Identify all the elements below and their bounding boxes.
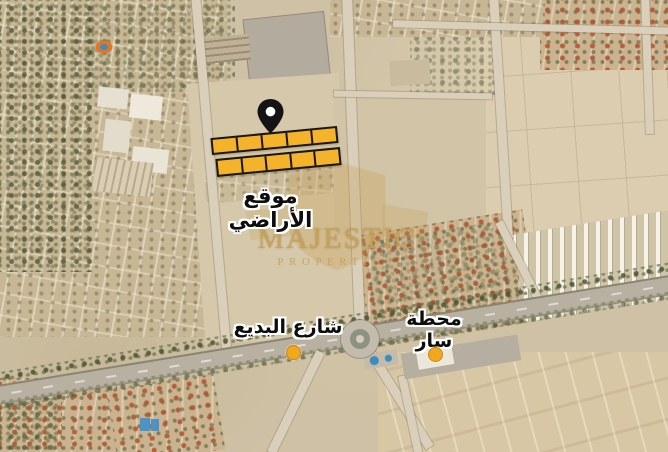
roundabout-center	[356, 335, 364, 343]
warehouse-building	[92, 157, 153, 197]
plot-cell	[213, 138, 239, 153]
road-roundabout-southwest	[267, 350, 324, 452]
building-block	[102, 119, 131, 154]
plot-cell	[238, 135, 264, 150]
building-strip	[201, 34, 251, 65]
budaiya-road-label: شارع البديع	[233, 317, 343, 339]
plot-cell	[287, 130, 313, 145]
location-pin-icon	[257, 99, 284, 134]
building-block	[97, 86, 129, 109]
plot-cell	[262, 133, 288, 148]
tree-cover-west	[0, 0, 92, 272]
map-image: MAJESTIC PROPERTIES موقع الأراضي شارع ال…	[0, 0, 668, 452]
villas-north	[330, 0, 545, 37]
plot-cell	[312, 128, 336, 143]
station-marker-dot	[428, 347, 443, 362]
watermark-tagline: PROPERTIES	[237, 256, 437, 268]
plot-cell	[267, 154, 293, 170]
pool-feature	[92, 38, 116, 56]
plot-cell	[291, 151, 317, 167]
roundabout	[341, 320, 379, 358]
site-label: موقع الأراضي	[198, 184, 343, 232]
plot-cell	[242, 156, 268, 172]
plot-cell	[316, 149, 340, 165]
road-marker-dot	[286, 345, 301, 360]
plot-cell	[218, 158, 244, 174]
swimming-pool	[140, 418, 150, 431]
building-block	[129, 93, 163, 120]
swimming-pool	[151, 419, 159, 431]
shed-building	[389, 59, 430, 86]
